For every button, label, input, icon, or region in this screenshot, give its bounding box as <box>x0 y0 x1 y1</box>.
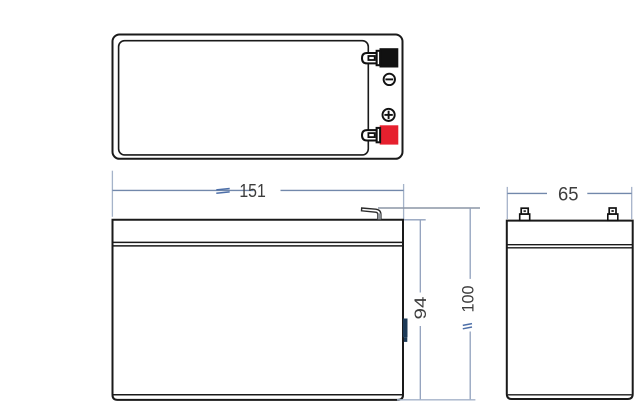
svg-text:65: 65 <box>558 185 579 206</box>
svg-text:94: 94 <box>411 297 430 320</box>
svg-text:151: 151 <box>239 181 266 201</box>
svg-text:100: 100 <box>460 286 478 313</box>
